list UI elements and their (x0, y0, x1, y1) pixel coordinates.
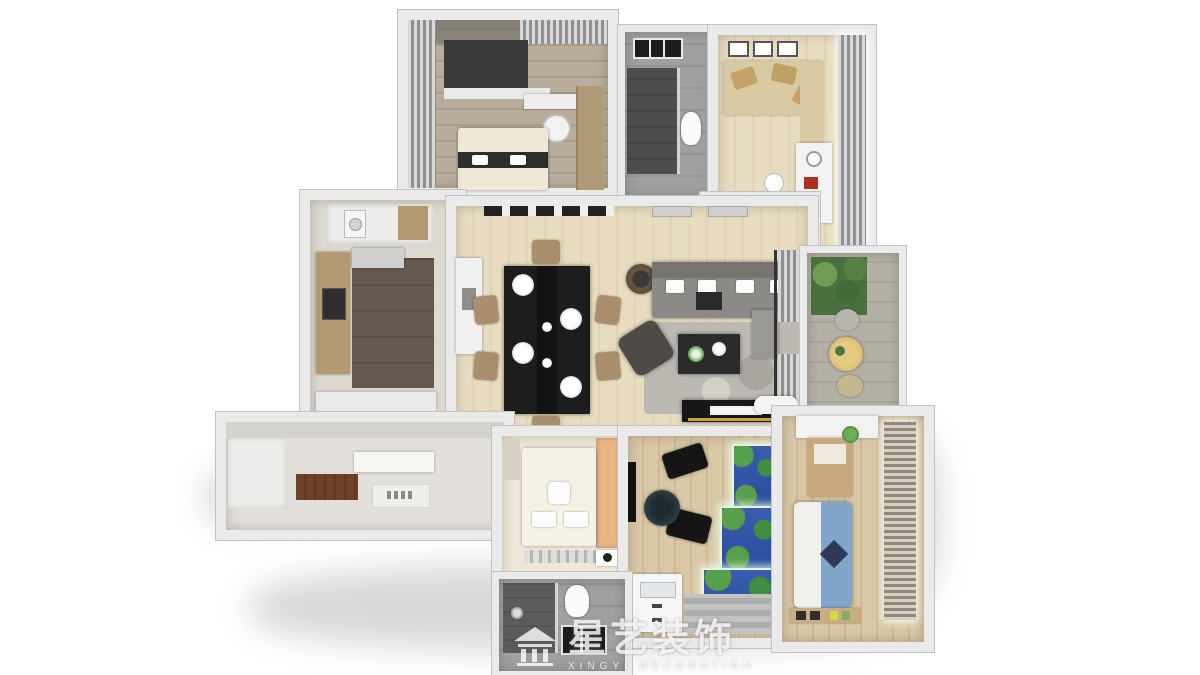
books (830, 611, 838, 620)
bed-mattress (794, 502, 821, 608)
cup (806, 151, 822, 167)
folded-blanket (548, 482, 570, 504)
shoe-cabinet (228, 438, 286, 508)
flower-vase (712, 342, 726, 356)
bed (522, 448, 596, 546)
sofa-pillow (666, 280, 684, 293)
office-chair (661, 442, 709, 480)
entry-rug (372, 484, 430, 508)
room-aquarium-study (618, 426, 794, 648)
bedside-rug (524, 550, 596, 563)
plate-setting (560, 376, 582, 398)
cushion (730, 66, 758, 91)
dining-chair (473, 295, 500, 325)
window-curtain (520, 20, 608, 44)
plate-setting (560, 308, 582, 330)
room-dining-living (446, 196, 818, 444)
aquarium-middle (720, 506, 776, 572)
picture-frames (728, 41, 798, 57)
bed (794, 502, 852, 608)
dining-chair (532, 240, 560, 264)
rug-pattern (387, 491, 413, 499)
room-kids-bedroom (772, 406, 934, 652)
cushion (770, 63, 797, 86)
tatami-bench-side (800, 61, 824, 155)
picture-frame-icon (777, 41, 798, 57)
entry-door-mat (296, 474, 358, 500)
dining-chair (473, 351, 499, 381)
bed-pillow (564, 512, 588, 527)
books (796, 611, 806, 620)
glass-door-frame (774, 250, 777, 414)
brand-name-en: XINGYI DECORATION (568, 661, 756, 672)
table-runner (537, 266, 557, 414)
toilet (681, 112, 701, 145)
sofa-pillow (736, 280, 754, 293)
dining-table (504, 266, 590, 414)
console-cabinet (354, 452, 434, 472)
sofa-throw (696, 292, 722, 310)
room-entry (216, 412, 514, 540)
bed (458, 128, 548, 190)
bed-book (510, 155, 526, 165)
drawer-handle (652, 604, 662, 608)
picture-frame-icon (753, 41, 774, 57)
plate-setting (512, 274, 534, 296)
round-ottoman (644, 490, 680, 526)
room-small-bedroom (492, 426, 638, 592)
balcony-table (829, 337, 863, 371)
range-hood (352, 248, 404, 268)
coffee-table (678, 334, 740, 374)
balcony-plants (811, 257, 867, 315)
window (633, 38, 683, 59)
trash-bin (764, 173, 784, 193)
floorplan-render: 星艺装饰 XINGYI DECORATION (0, 0, 1200, 675)
bookshelf (790, 608, 860, 623)
shower-glass (677, 68, 680, 174)
room-kitchen (300, 190, 466, 442)
kettle (603, 553, 612, 562)
sink-basin (640, 582, 676, 598)
balcony-chair (835, 309, 859, 331)
bed-book (472, 155, 488, 165)
desk-red-item (804, 177, 818, 189)
centerpiece (542, 322, 552, 332)
window-mullion (663, 40, 665, 57)
utility-closet (326, 204, 434, 244)
headboard-accent-wall (596, 438, 620, 548)
books (810, 611, 820, 620)
top-cabinet (796, 416, 878, 438)
dining-chair (594, 295, 621, 326)
wall-tv (628, 462, 636, 522)
potted-plant (842, 426, 859, 443)
washer-door-icon (349, 218, 362, 231)
watermark: 星艺装饰 XINGYI DECORATION (512, 620, 756, 672)
wardrobe-dark (444, 40, 528, 88)
closet (504, 438, 520, 480)
window-curtain (838, 35, 866, 253)
aquarium-upper (732, 444, 776, 510)
dining-chair (595, 351, 621, 381)
fruit-bowl (835, 346, 845, 356)
nightstand (596, 550, 618, 566)
bed-pillow (532, 512, 556, 527)
centerpiece (542, 358, 552, 368)
books (842, 611, 850, 620)
plate-setting (512, 342, 534, 364)
ac-vent-icon (652, 206, 692, 217)
utility-cabinet (398, 206, 428, 240)
brand-name-cn: 星艺装饰 (568, 620, 756, 658)
flower-vase (688, 346, 704, 362)
marble-wall-band (226, 422, 504, 438)
pavilion-house-icon (512, 625, 558, 667)
desk (808, 438, 852, 496)
built-in-oven (322, 288, 346, 320)
kitchen-floor-tiles (352, 258, 434, 388)
washing-machine (344, 210, 366, 238)
window-mullion (649, 40, 651, 57)
room-bathroom-top (618, 25, 722, 204)
wardrobe-wood (576, 86, 604, 190)
tall-cabinet (316, 252, 350, 374)
balcony-chair (837, 375, 863, 397)
picture-frame-icon (728, 41, 749, 57)
toilet (565, 585, 589, 617)
window-curtain (408, 20, 436, 188)
wall-art-frames (484, 206, 614, 216)
ac-vent-icon (708, 206, 748, 217)
desk-top-papers (814, 444, 846, 464)
shower-tiles (627, 68, 677, 174)
room-master-bedroom (398, 10, 618, 198)
shower-head-icon (511, 607, 523, 619)
window-curtain (884, 422, 916, 620)
